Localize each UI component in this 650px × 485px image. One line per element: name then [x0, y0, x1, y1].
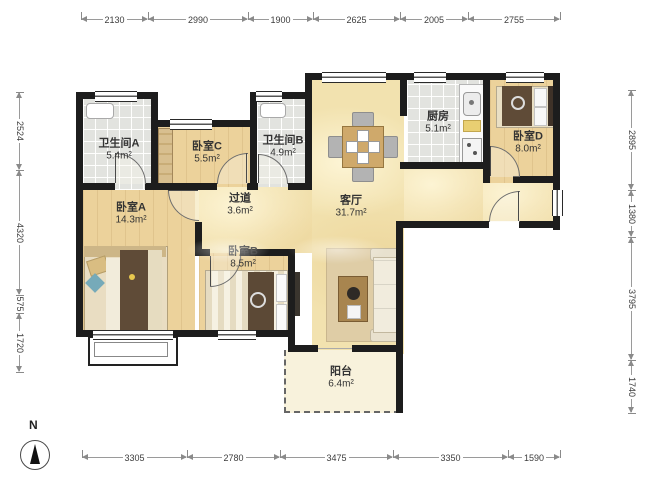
wall-segment — [396, 347, 403, 413]
door-leaf — [258, 154, 259, 183]
compass-icon — [20, 440, 50, 470]
room-label-living: 客厅 31.7m² — [335, 194, 366, 219]
ruler-tick — [16, 295, 24, 296]
wall-segment — [513, 176, 560, 183]
dimension-top: 2990 — [148, 15, 248, 25]
dimension-top: 2005 — [400, 15, 468, 25]
door-leaf — [168, 190, 198, 191]
ruler-tick — [628, 90, 636, 91]
room-label-bathroom-a: 卫生间A 5.4m² — [99, 137, 140, 162]
bed-d-pillow — [534, 107, 547, 126]
ruler-tick — [628, 360, 636, 361]
kitchen-stove — [462, 138, 482, 164]
window — [170, 119, 212, 130]
bed-a-duvet — [106, 258, 120, 330]
room-label-bedroom-d: 卧室D 8.0m² — [513, 130, 543, 155]
dimension-bottom: 3475 — [280, 453, 393, 463]
window — [552, 190, 563, 216]
wall-segment — [396, 221, 489, 228]
ruler-tick — [628, 237, 636, 238]
ruler-tick — [560, 12, 561, 20]
dining-chair — [352, 167, 374, 182]
tv — [295, 272, 300, 316]
dining-chair — [383, 136, 398, 158]
room-label-bedroom-b: 卧室B 8.5m² — [228, 245, 258, 270]
ruler-tick — [280, 450, 281, 458]
dimension-right: 3795 — [627, 237, 637, 360]
room-label-hallway: 过道 3.6m² — [227, 192, 253, 217]
wall-segment — [305, 99, 312, 190]
wall-segment — [76, 92, 83, 337]
wall-segment — [250, 127, 257, 190]
dimension-left: 2524 — [15, 92, 25, 170]
wall-segment — [76, 183, 115, 190]
dimension-right: 2895 — [627, 90, 637, 190]
door-leaf — [246, 153, 247, 183]
bed-a-bench — [148, 250, 162, 332]
room-floor-passage — [404, 169, 483, 221]
plate — [357, 152, 369, 164]
dimension-left: 575 — [15, 295, 25, 313]
dimension-top: 1900 — [248, 15, 313, 25]
dimension-left: 1720 — [15, 313, 25, 372]
bed-b-ornament — [250, 292, 266, 308]
door-leaf — [210, 256, 211, 286]
wall-segment — [145, 183, 217, 190]
ruler-tick — [400, 12, 401, 20]
compass-north-label: N — [29, 418, 38, 432]
bed-a-lamp — [129, 274, 135, 280]
ruler-tick — [468, 12, 469, 20]
ruler-tick — [508, 450, 509, 458]
room-floor-hallway — [195, 187, 312, 253]
room-label-bedroom-a: 卧室A 14.3m² — [115, 201, 146, 226]
wall-segment — [288, 183, 312, 190]
window — [218, 330, 256, 340]
ruler-tick — [187, 450, 188, 458]
washbasin — [86, 103, 114, 119]
room-label-bedroom-c: 卧室C 5.5m² — [192, 140, 222, 165]
ruler-tick — [313, 12, 314, 20]
room-label-bathroom-b: 卫生间B 4.9m² — [263, 134, 304, 159]
ruler-tick — [393, 450, 394, 458]
bed-b-pillow — [276, 304, 287, 332]
dimension-top: 2130 — [81, 15, 148, 25]
wall-segment — [352, 345, 403, 352]
wall-segment — [400, 80, 407, 116]
dimension-left: 4320 — [15, 170, 25, 295]
window — [322, 72, 386, 83]
wardrobe — [158, 128, 173, 184]
bay-window-inner — [94, 342, 168, 357]
wall-segment — [288, 249, 295, 337]
dimension-bottom: 3350 — [393, 453, 508, 463]
bed-d-pillow — [534, 88, 547, 107]
ruler-tick — [16, 313, 24, 314]
ruler-tick — [16, 92, 24, 93]
window — [256, 91, 282, 102]
wall-segment — [195, 249, 210, 256]
ruler-tick — [560, 450, 561, 458]
plate — [368, 141, 380, 153]
room-label-balcony: 阳台 6.4m² — [328, 365, 354, 390]
wall-segment — [519, 221, 560, 228]
tray — [347, 305, 361, 319]
dimension-right: 1380 — [627, 190, 637, 237]
wall-segment — [483, 80, 490, 183]
floor-plan-canvas: 卫生间A 5.4m² 卧室C 5.5m² 卫生间B 4.9m² 厨房 5.1m²… — [0, 0, 650, 485]
bay-window-band — [93, 330, 173, 340]
stove-burner — [467, 143, 471, 147]
door-leaf — [518, 191, 519, 221]
ruler-tick — [82, 450, 83, 458]
bed-a-blanket — [120, 250, 148, 332]
ruler-tick — [81, 12, 82, 20]
wall-segment — [288, 345, 318, 352]
wall-segment — [400, 162, 490, 169]
dining-chair — [352, 112, 374, 127]
balcony-opening — [318, 348, 352, 349]
dimension-top: 2755 — [468, 15, 560, 25]
ruler-tick — [248, 12, 249, 20]
ruler-tick — [628, 190, 636, 191]
kitchen-item — [463, 120, 481, 132]
dimension-bottom: 3305 — [82, 453, 187, 463]
window — [95, 91, 137, 102]
dimension-top: 2625 — [313, 15, 400, 25]
kettle — [347, 287, 360, 300]
window — [414, 72, 446, 83]
dining-chair — [328, 136, 343, 158]
wall-segment — [151, 99, 158, 190]
door-leaf — [490, 146, 491, 176]
ruler-tick — [628, 413, 636, 414]
kitchen-faucet — [469, 100, 474, 105]
room-label-kitchen: 厨房 5.1m² — [425, 110, 451, 135]
dimension-bottom: 1590 — [508, 453, 560, 463]
window — [506, 72, 544, 83]
bed-b-pillow — [276, 274, 287, 302]
wall-segment — [396, 228, 403, 354]
washbasin — [260, 103, 286, 118]
ruler-tick — [148, 12, 149, 20]
ruler-tick — [16, 372, 24, 373]
compass-needle-icon — [30, 444, 40, 464]
stove-burner — [473, 151, 477, 155]
dimension-bottom: 2780 — [187, 453, 280, 463]
plate — [346, 141, 358, 153]
wall-segment — [247, 183, 258, 190]
ruler-tick — [16, 170, 24, 171]
bed-d-ornament — [511, 96, 525, 110]
dimension-right: 1740 — [627, 360, 637, 413]
